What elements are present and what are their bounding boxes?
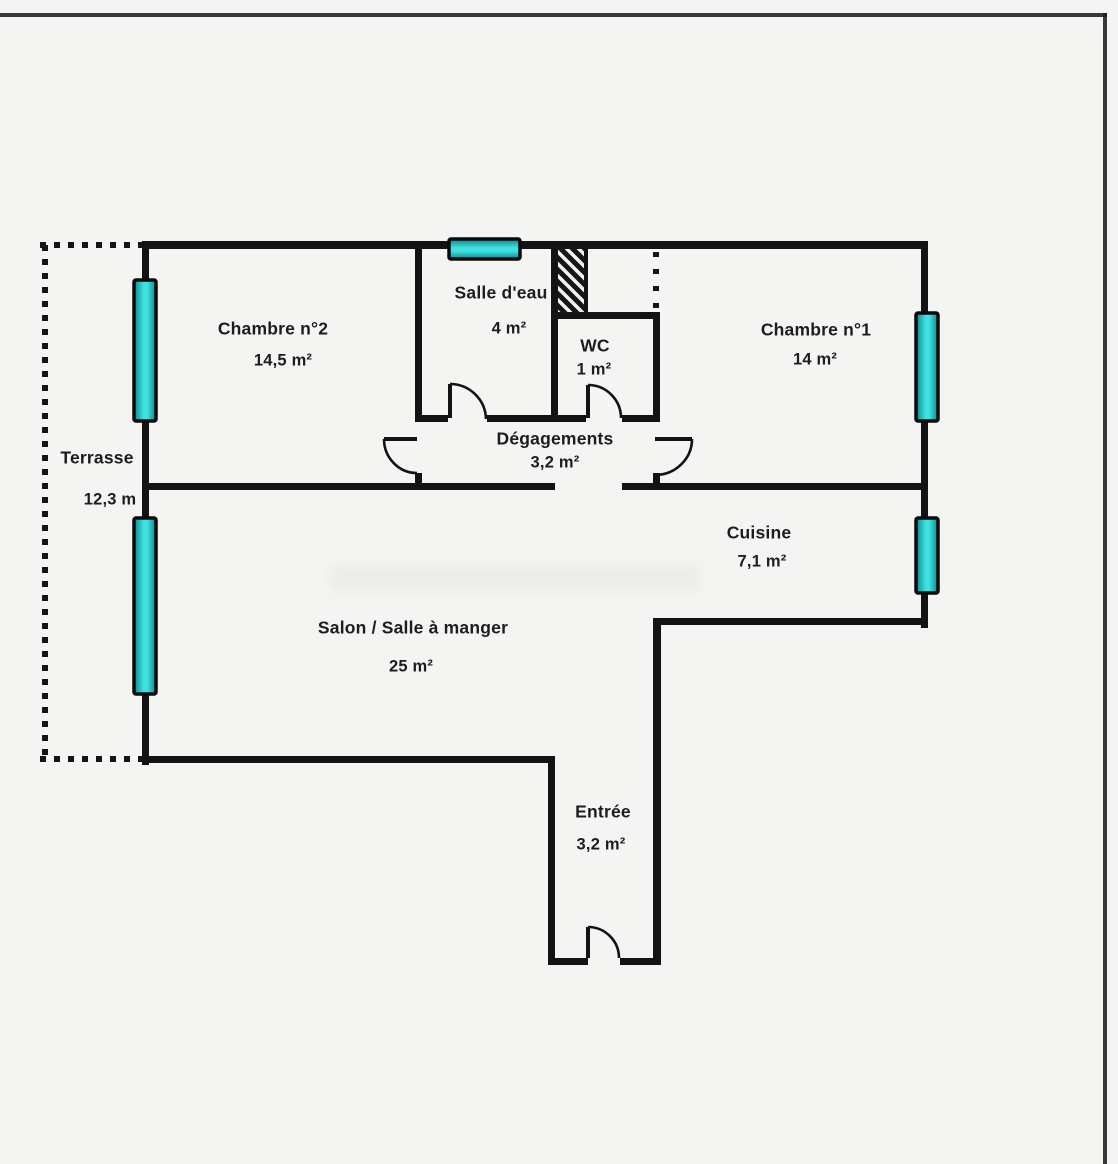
frame-top-line: [0, 13, 1107, 17]
room-label-cuisine-name: Cuisine: [727, 523, 792, 544]
frame-right-line: [1103, 13, 1107, 1164]
door-arc-entree: [588, 927, 619, 958]
duct-hatch-right-edge: [584, 244, 588, 316]
wall-corridor-top-b: [487, 415, 586, 422]
room-label-chambre1-name: Chambre n°1: [761, 320, 871, 341]
room-label-salledeau-name: Salle d'eau: [455, 283, 548, 304]
window-right-chambre1: [916, 313, 938, 421]
wall-stub-chambre2-door: [415, 473, 422, 490]
room-label-degagements-name: Dégagements: [497, 429, 614, 450]
window-left-salon: [134, 518, 156, 694]
room-label-degagements-area: 3,2 m²: [531, 454, 580, 473]
room-label-entree-area: 3,2 m²: [577, 836, 626, 855]
door-arc-wc: [588, 385, 621, 418]
room-label-entree-name: Entrée: [575, 802, 631, 823]
room-label-chambre2-area: 14,5 m²: [254, 352, 312, 371]
wall-corridor-top-a: [415, 415, 448, 422]
wall-entree-bottom-b: [620, 958, 661, 965]
room-label-chambre1-area: 14 m²: [793, 351, 837, 370]
wall-salon-bottom: [142, 756, 555, 763]
room-label-salon-name: Salon / Salle à manger: [318, 618, 508, 639]
wall-wc-top: [551, 312, 660, 319]
wall-corridor-top-c: [622, 415, 653, 422]
room-label-cuisine-area: 7,1 m²: [738, 553, 787, 572]
door-arc-chambre2: [384, 439, 417, 473]
room-label-terrasse-name: Terrasse: [60, 448, 133, 469]
wall-divider-left: [142, 483, 555, 490]
wall-exterior-top: [142, 241, 928, 249]
wall-entree-left: [548, 756, 555, 965]
room-label-chambre2-name: Chambre n°2: [218, 319, 328, 340]
wall-divider-right: [622, 483, 928, 490]
wall-cuisine-bottom: [653, 618, 928, 625]
wall-entree-right: [653, 618, 661, 965]
room-label-wc-area: 1 m²: [577, 361, 612, 380]
door-arc-salledeau: [450, 384, 486, 419]
door-arc-chambre1: [655, 439, 692, 475]
wall-entree-bottom-a: [548, 958, 588, 965]
wall-salledeau-left: [415, 241, 422, 422]
window-right-cuisine: [916, 518, 938, 593]
window-left-chambre2: [134, 280, 156, 421]
floor-plan-page: Chambre n°2 14,5 m² Salle d'eau 4 m² WC …: [0, 0, 1118, 1164]
watermark-smudge: [330, 565, 700, 591]
window-top-salledeau: [449, 239, 520, 259]
room-label-salledeau-area: 4 m²: [492, 320, 527, 339]
room-label-salon-area: 25 m²: [389, 658, 433, 677]
room-label-wc-name: WC: [580, 336, 610, 357]
wall-salledeau-right: [551, 241, 558, 422]
wall-chambre1-left: [653, 312, 660, 422]
room-label-terrasse-area: 12,3 m: [84, 491, 137, 510]
duct-hatch: [558, 249, 584, 312]
